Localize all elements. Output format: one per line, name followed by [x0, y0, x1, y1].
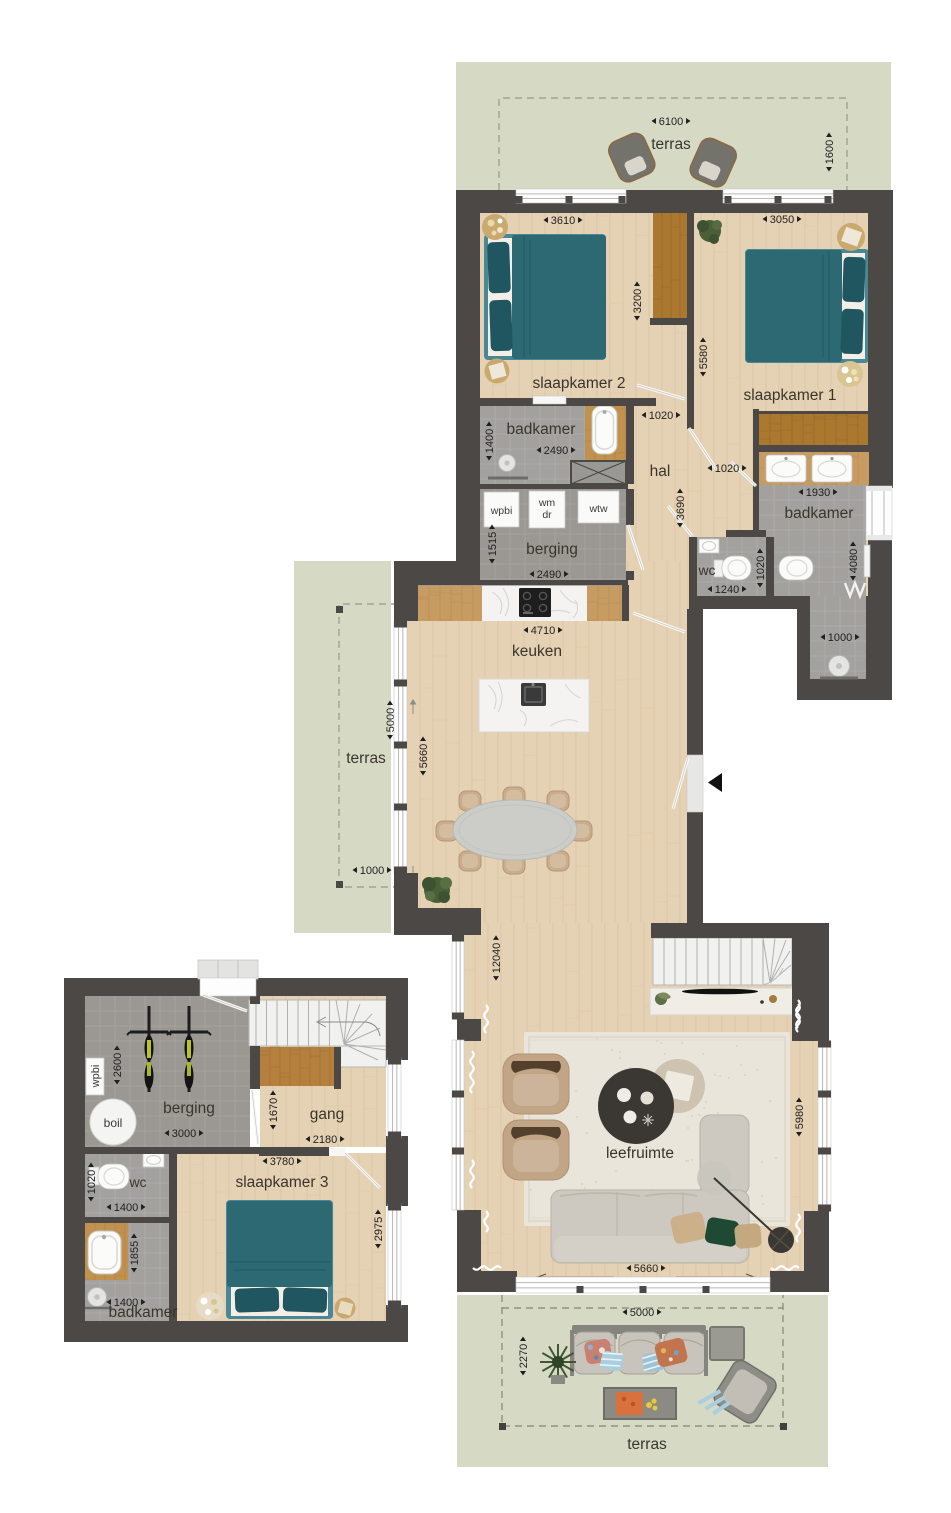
svg-text:wc: wc — [128, 1174, 146, 1190]
svg-text:slaapkamer 3: slaapkamer 3 — [235, 1174, 328, 1191]
svg-text:1400: 1400 — [484, 429, 496, 453]
svg-text:3000: 3000 — [172, 1128, 196, 1140]
svg-text:3690: 3690 — [675, 496, 687, 520]
svg-text:3200: 3200 — [632, 289, 644, 313]
svg-text:terras: terras — [651, 136, 691, 153]
svg-text:5580: 5580 — [698, 345, 710, 369]
svg-text:1020: 1020 — [715, 463, 739, 475]
svg-text:2180: 2180 — [313, 1134, 337, 1146]
svg-text:2975: 2975 — [373, 1217, 385, 1241]
svg-text:2600: 2600 — [112, 1053, 124, 1077]
svg-text:1855: 1855 — [129, 1241, 141, 1265]
svg-text:1930: 1930 — [806, 487, 830, 499]
svg-text:wpbi: wpbi — [90, 1065, 102, 1089]
svg-text:leefruimte: leefruimte — [606, 1145, 674, 1162]
svg-text:wtw: wtw — [588, 503, 608, 515]
svg-text:slaapkamer 2: slaapkamer 2 — [532, 375, 625, 392]
svg-text:badkamer: badkamer — [109, 1304, 178, 1321]
svg-text:3610: 3610 — [551, 215, 575, 227]
svg-text:2270: 2270 — [518, 1344, 530, 1368]
svg-text:1400: 1400 — [114, 1202, 138, 1214]
svg-text:boil: boil — [104, 1116, 123, 1130]
svg-text:slaapkamer 1: slaapkamer 1 — [743, 387, 836, 404]
svg-text:berging: berging — [526, 541, 578, 558]
svg-text:2490: 2490 — [537, 569, 561, 581]
svg-text:1515: 1515 — [487, 532, 499, 556]
svg-text:4080: 4080 — [848, 549, 860, 573]
svg-text:1000: 1000 — [360, 865, 384, 877]
svg-text:5980: 5980 — [794, 1105, 806, 1129]
svg-text:1000: 1000 — [828, 632, 852, 644]
svg-text:berging: berging — [163, 1100, 215, 1117]
svg-text:2490: 2490 — [544, 445, 568, 457]
svg-text:1240: 1240 — [715, 584, 739, 596]
svg-text:dr: dr — [542, 509, 552, 521]
svg-text:keuken: keuken — [512, 643, 562, 660]
svg-text:gang: gang — [310, 1106, 344, 1123]
svg-text:wm: wm — [538, 497, 556, 509]
svg-text:hal: hal — [650, 463, 671, 480]
svg-text:4710: 4710 — [531, 625, 555, 637]
svg-text:3780: 3780 — [270, 1156, 294, 1168]
svg-text:1670: 1670 — [268, 1098, 280, 1122]
svg-text:terras: terras — [627, 1436, 667, 1453]
svg-text:wpbi: wpbi — [490, 505, 513, 517]
svg-text:badkamer: badkamer — [507, 421, 576, 438]
svg-text:1020: 1020 — [755, 556, 767, 580]
svg-text:badkamer: badkamer — [785, 505, 854, 522]
svg-text:1020: 1020 — [649, 410, 673, 422]
svg-text:1020: 1020 — [86, 1170, 98, 1194]
svg-text:5660: 5660 — [418, 744, 430, 768]
svg-text:6100: 6100 — [659, 116, 683, 128]
svg-text:terras: terras — [346, 750, 386, 767]
svg-text:5000: 5000 — [630, 1307, 654, 1319]
svg-text:1600: 1600 — [824, 140, 836, 164]
svg-text:wc: wc — [697, 562, 715, 578]
svg-text:3050: 3050 — [770, 214, 794, 226]
svg-text:5660: 5660 — [634, 1263, 658, 1275]
svg-text:12040: 12040 — [491, 943, 503, 974]
